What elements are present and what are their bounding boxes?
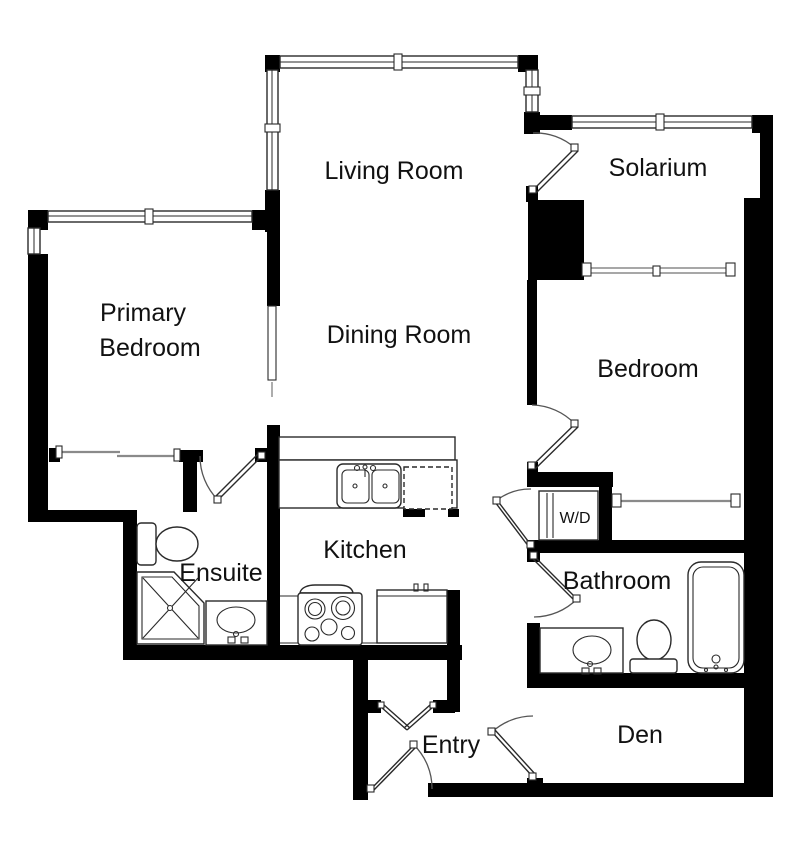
primary-bedroom-label-line2: Bedroom bbox=[99, 334, 200, 362]
left-side-window bbox=[28, 228, 40, 254]
laundry-closet-door bbox=[493, 489, 534, 548]
living-room-right-window bbox=[524, 70, 540, 112]
refrigerator bbox=[377, 584, 447, 643]
solarium-label: Solarium bbox=[609, 154, 708, 182]
solarium-door bbox=[529, 133, 578, 193]
living-room-left-window bbox=[265, 70, 280, 190]
primary-bedroom-label-line1: Primary bbox=[100, 299, 187, 327]
bedroom-closet-rod bbox=[612, 494, 740, 507]
bedroom-label: Bedroom bbox=[597, 355, 698, 383]
den-label: Den bbox=[617, 721, 663, 749]
bathroom-toilet bbox=[630, 620, 677, 673]
ensuite-vanity bbox=[206, 601, 267, 645]
solarium-top-window bbox=[572, 114, 752, 130]
laundry-closet-label: W/D bbox=[559, 510, 590, 527]
living-room-top-window bbox=[280, 54, 518, 70]
sliding-door bbox=[268, 306, 276, 397]
primary-bedroom-window bbox=[48, 209, 252, 224]
entry-label: Entry bbox=[422, 731, 481, 759]
entry-closet-bifold-doors bbox=[378, 702, 436, 730]
bathroom-vanity bbox=[540, 628, 623, 674]
solarium-bedroom-window bbox=[582, 263, 735, 276]
bedroom-door bbox=[528, 405, 578, 469]
kitchen-bar-counter bbox=[279, 437, 455, 460]
dishwasher bbox=[404, 467, 452, 509]
ensuite-label: Ensuite bbox=[179, 559, 262, 587]
living-room-label: Living Room bbox=[325, 157, 464, 185]
stove bbox=[298, 585, 362, 645]
primary-closet-rod bbox=[56, 446, 180, 461]
bathroom-label: Bathroom bbox=[563, 567, 671, 595]
den-door bbox=[488, 716, 536, 780]
bathtub bbox=[688, 562, 744, 673]
kitchen-label: Kitchen bbox=[323, 536, 406, 564]
kitchen-sink bbox=[337, 464, 401, 508]
floor-plan: Living Room Solarium Primary Bedroom Din… bbox=[0, 0, 800, 868]
dining-room-label: Dining Room bbox=[327, 321, 472, 349]
